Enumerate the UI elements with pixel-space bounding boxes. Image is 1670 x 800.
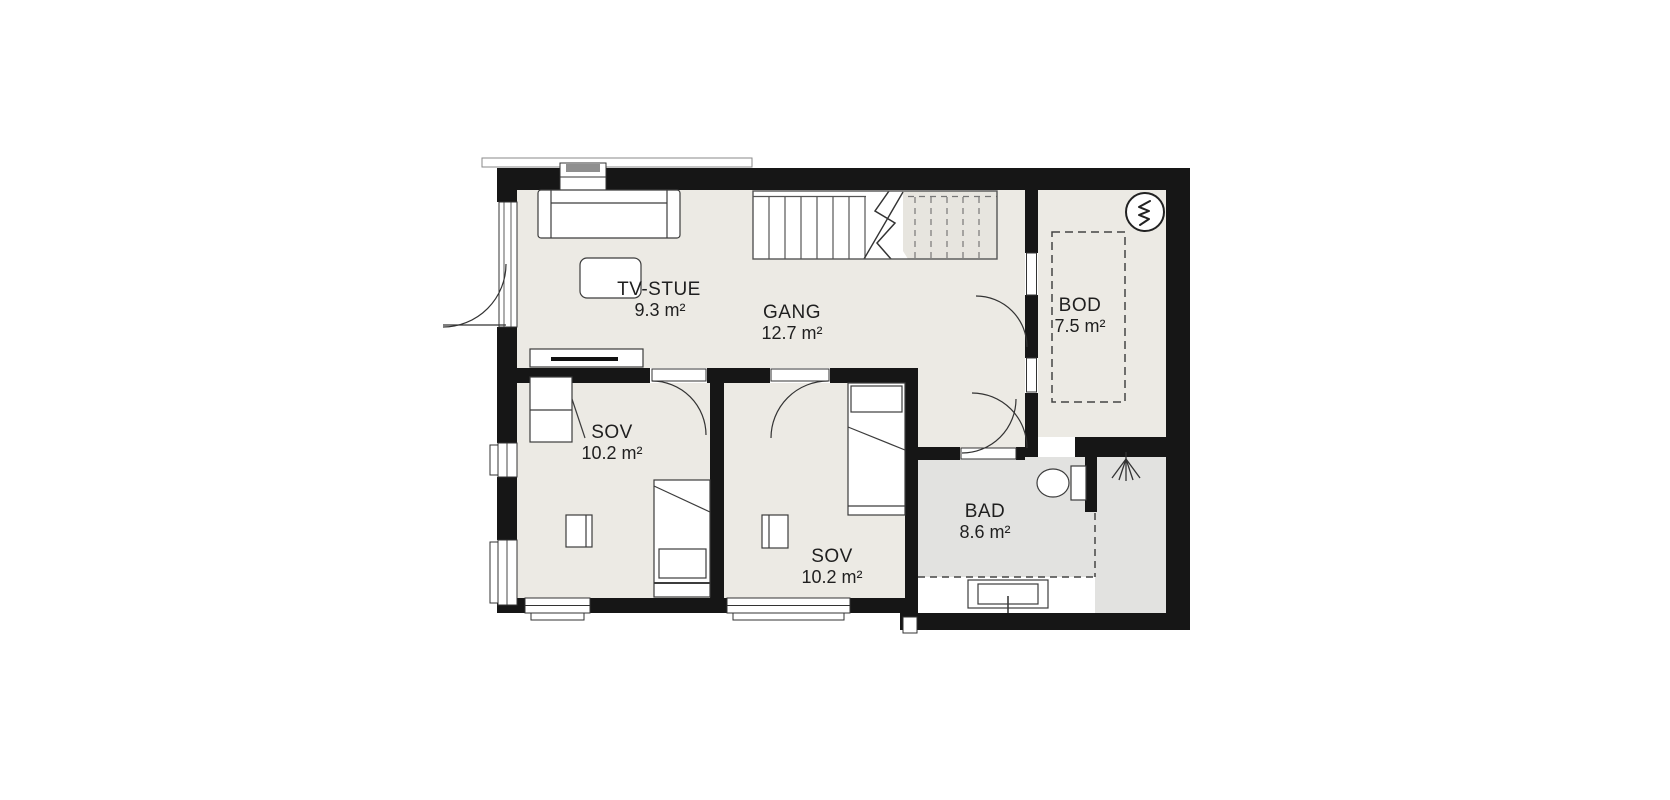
room-area-bad: 8.6 m² <box>959 522 1010 542</box>
wall-right <box>1166 168 1190 630</box>
entry-door-arc <box>443 264 506 327</box>
wall-bottom-bad <box>900 613 1190 630</box>
window-bottom-sov1 <box>525 598 590 620</box>
wall-left-seg3 <box>497 477 517 540</box>
wall-bottom-seg2 <box>590 598 727 613</box>
stairs <box>753 191 997 259</box>
wall-sov1-sov2 <box>710 368 724 598</box>
wall-divider-seg1 <box>497 368 650 383</box>
nightstand-sov2 <box>762 515 788 548</box>
pillow-sov1 <box>659 549 706 578</box>
room-label-sov2: SOV <box>811 546 853 567</box>
window-left-2 <box>490 540 517 605</box>
window-left-1 <box>490 443 517 477</box>
room-area-tv-stue: 9.3 m² <box>634 300 685 320</box>
wall-bad-top-seg2 <box>1016 447 1025 460</box>
room-label-gang: GANG <box>763 302 821 323</box>
room-area-bod: 7.5 m² <box>1054 316 1105 336</box>
wall-left-seg1 <box>497 168 517 202</box>
floor-plan: TV-STUE 9.3 m² GANG 12.7 m² BOD 7.5 m² S… <box>0 0 1670 800</box>
room-area-sov2: 10.2 m² <box>801 567 862 587</box>
wall-bad-top-seg1 <box>918 447 960 460</box>
wall-bod-bottom <box>1075 437 1190 457</box>
bed-sov2 <box>848 383 905 515</box>
room-label-sov1: SOV <box>591 422 633 443</box>
window-bottom-sov2 <box>727 598 850 620</box>
water-heater-icon <box>1126 193 1164 231</box>
tv-bench <box>530 349 643 367</box>
room-label-bad: BAD <box>965 501 1006 522</box>
room-label-bod: BOD <box>1059 295 1102 316</box>
wall-gang-bod-seg1 <box>1025 190 1038 253</box>
room-area-sov1: 10.2 m² <box>581 443 642 463</box>
nightstand-sov1 <box>566 515 592 547</box>
tv-icon <box>551 357 618 361</box>
room-area-gang: 12.7 m² <box>761 323 822 343</box>
wall-gang-bod-seg2 <box>1025 295 1038 358</box>
sofa <box>538 190 680 238</box>
roof-overhang-line <box>482 158 752 167</box>
entry-door <box>443 202 517 327</box>
wall-left-seg2 <box>497 327 517 443</box>
room-floor-gang-extension <box>918 368 1025 457</box>
wall-sov2-bad <box>905 368 918 613</box>
room-label-tv-stue: TV-STUE <box>617 279 701 300</box>
bed-sov1 <box>654 480 710 597</box>
wall-divider-seg3 <box>830 368 918 383</box>
stairs-upper-area <box>903 191 997 259</box>
wall-toilet-stub <box>1085 457 1097 512</box>
toilet <box>1037 466 1086 500</box>
window-top-tvstue <box>560 163 606 190</box>
pillow-sov2 <box>851 386 902 412</box>
floor-plan-canvas: TV-STUE 9.3 m² GANG 12.7 m² BOD 7.5 m² S… <box>0 0 1670 800</box>
window-bottom-step <box>903 617 917 633</box>
exterior-trim <box>482 158 752 167</box>
washbasin <box>968 580 1048 613</box>
